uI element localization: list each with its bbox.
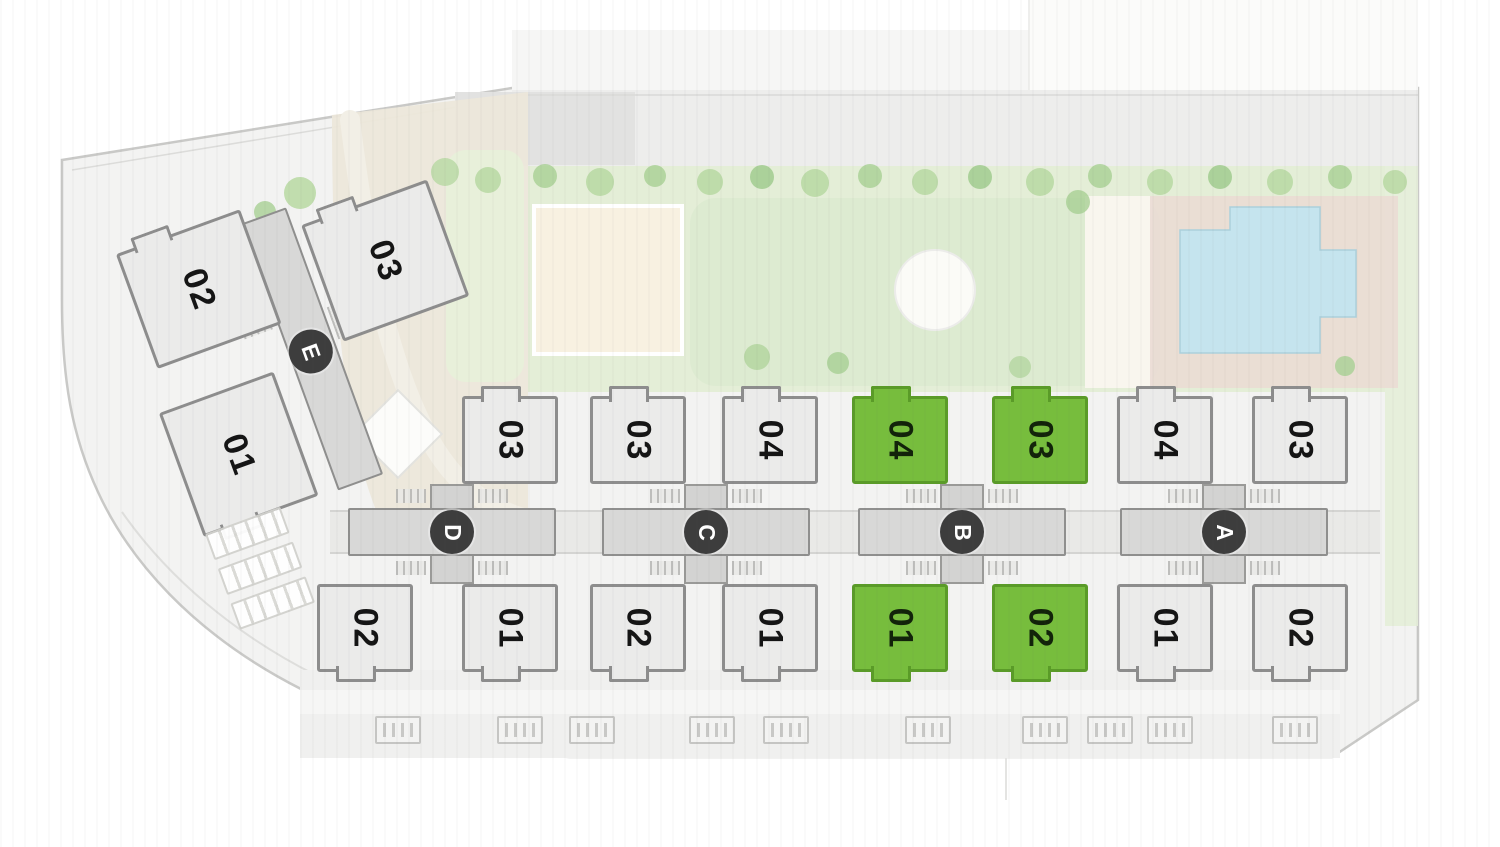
grille-stripes — [1030, 723, 1060, 737]
unit-B-01[interactable]: 01 — [852, 584, 948, 672]
building-B-core-badge: B — [940, 510, 984, 554]
corridor-connector-0 — [330, 510, 350, 554]
building-E-letter: E — [297, 340, 324, 362]
unit-D-03-number: 03 — [490, 419, 529, 461]
building-B-letter: B — [951, 524, 974, 541]
building-C-stair-hatch-3 — [732, 561, 762, 575]
unit-E-01-number: 01 — [213, 428, 264, 481]
building-B-stair-hatch-3 — [988, 561, 1018, 575]
unit-B-03-tab — [1011, 386, 1051, 402]
building-B-stair-hatch-1 — [988, 489, 1018, 503]
unit-A-02-number: 02 — [1280, 607, 1319, 649]
unit-B-03-number: 03 — [1020, 419, 1059, 461]
entrance-grille-9 — [1272, 716, 1318, 744]
unit-C-04-tab — [741, 386, 781, 402]
unit-E-03-number: 03 — [360, 234, 411, 287]
building-D-core-badge: D — [430, 510, 474, 554]
building-A-stair-hatch-2 — [1168, 561, 1198, 575]
building-C-letter: C — [695, 524, 718, 541]
unit-A-01[interactable]: 01 — [1117, 584, 1213, 672]
building-D-stair-hatch-2 — [396, 561, 426, 575]
unit-A-01-number: 01 — [1145, 607, 1184, 649]
building-C-stair-hatch-2 — [650, 561, 680, 575]
grille-stripes — [913, 723, 943, 737]
unit-C-02-number: 02 — [618, 607, 657, 649]
building-B-stair-hatch-2 — [906, 561, 936, 575]
unit-B-03[interactable]: 03 — [992, 396, 1088, 484]
unit-E-02-tab — [130, 225, 173, 254]
building-D-letter: D — [441, 524, 464, 541]
unit-C-04-number: 04 — [750, 419, 789, 461]
unit-D-01[interactable]: 01 — [462, 584, 558, 672]
building-A-stair-hatch-3 — [1250, 561, 1280, 575]
unit-D-01-tab — [481, 666, 521, 682]
unit-E-02-number: 02 — [173, 263, 224, 316]
unit-B-02-tab — [1011, 666, 1051, 682]
grille-stripes — [1095, 723, 1125, 737]
grille-stripes — [383, 723, 413, 737]
unit-C-01[interactable]: 01 — [722, 584, 818, 672]
unit-C-01-number: 01 — [750, 607, 789, 649]
entrance-grille-8 — [1147, 716, 1193, 744]
entrance-grille-7 — [1087, 716, 1133, 744]
unit-D-03[interactable]: 03 — [462, 396, 558, 484]
grille-stripes — [697, 723, 727, 737]
grille-stripes — [1280, 723, 1310, 737]
entrance-grille-2 — [569, 716, 615, 744]
entrance-grille-6 — [1022, 716, 1068, 744]
unit-A-04[interactable]: 04 — [1117, 396, 1213, 484]
building-C-stair-hatch-0 — [650, 489, 680, 503]
entrance-grille-0 — [375, 716, 421, 744]
unit-B-04-tab — [871, 386, 911, 402]
building-A-letter: A — [1213, 524, 1236, 541]
unit-B-04-number: 04 — [880, 419, 919, 461]
grille-stripes — [505, 723, 535, 737]
unit-A-03[interactable]: 03 — [1252, 396, 1348, 484]
buildings-layer: E020301 DCBA0302010304020104030102040301… — [0, 0, 1500, 847]
grille-stripes — [577, 723, 607, 737]
corridor-connector-2 — [810, 510, 858, 554]
unit-C-01-tab — [741, 666, 781, 682]
unit-D-02-number: 02 — [345, 607, 384, 649]
corridor-connector-1 — [556, 510, 602, 554]
entrance-grille-4 — [763, 716, 809, 744]
building-A-core-badge: A — [1202, 510, 1246, 554]
unit-A-03-tab — [1271, 386, 1311, 402]
building-D-stair-hatch-1 — [478, 489, 508, 503]
unit-B-02[interactable]: 02 — [992, 584, 1088, 672]
unit-B-02-number: 02 — [1020, 607, 1059, 649]
unit-A-02-tab — [1271, 666, 1311, 682]
grille-stripes — [1155, 723, 1185, 737]
building-D-stair-hatch-3 — [478, 561, 508, 575]
corridor-connector-4 — [1328, 510, 1380, 554]
unit-C-02-tab — [609, 666, 649, 682]
unit-A-02[interactable]: 02 — [1252, 584, 1348, 672]
unit-D-02-tab — [336, 666, 376, 682]
building-A-stair-hatch-0 — [1168, 489, 1198, 503]
building-C-core-badge: C — [684, 510, 728, 554]
unit-E-03-tab — [316, 196, 359, 225]
unit-A-03-number: 03 — [1280, 419, 1319, 461]
unit-C-03-number: 03 — [618, 419, 657, 461]
unit-B-04[interactable]: 04 — [852, 396, 948, 484]
entrance-grille-5 — [905, 716, 951, 744]
unit-A-04-number: 04 — [1145, 419, 1184, 461]
unit-C-04[interactable]: 04 — [722, 396, 818, 484]
unit-D-02[interactable]: 02 — [317, 584, 413, 672]
unit-C-03[interactable]: 03 — [590, 396, 686, 484]
unit-B-01-tab — [871, 666, 911, 682]
unit-E-01[interactable]: 01 — [159, 371, 319, 537]
entrance-grille-1 — [497, 716, 543, 744]
building-B-stair-hatch-0 — [906, 489, 936, 503]
unit-A-04-tab — [1136, 386, 1176, 402]
unit-D-01-number: 01 — [490, 607, 529, 649]
unit-C-03-tab — [609, 386, 649, 402]
corridor-connector-3 — [1066, 510, 1120, 554]
unit-A-01-tab — [1136, 666, 1176, 682]
unit-D-03-tab — [481, 386, 521, 402]
unit-B-01-number: 01 — [880, 607, 919, 649]
building-D-stair-hatch-0 — [396, 489, 426, 503]
grille-stripes — [771, 723, 801, 737]
building-A-stair-hatch-1 — [1250, 489, 1280, 503]
unit-C-02[interactable]: 02 — [590, 584, 686, 672]
entrance-grille-3 — [689, 716, 735, 744]
building-C-stair-hatch-1 — [732, 489, 762, 503]
site-plan: E020301 DCBA0302010304020104030102040301… — [0, 0, 1500, 847]
